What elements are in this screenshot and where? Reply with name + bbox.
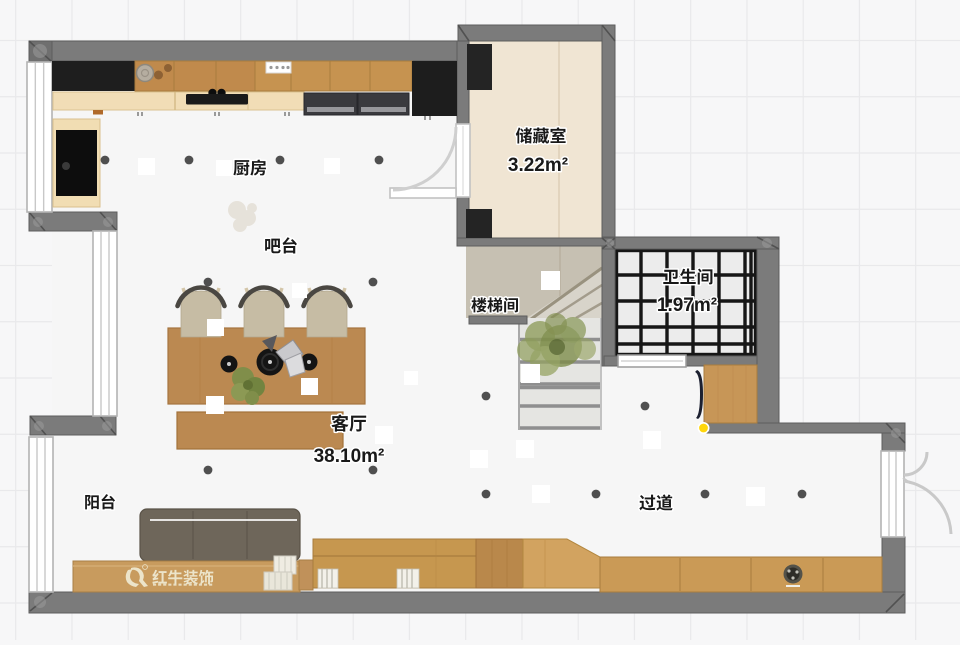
svg-text:38.10m²: 38.10m² — [314, 446, 385, 467]
svg-text:1.97m²: 1.97m² — [657, 295, 717, 316]
svg-text:3.22m²: 3.22m² — [508, 155, 568, 176]
